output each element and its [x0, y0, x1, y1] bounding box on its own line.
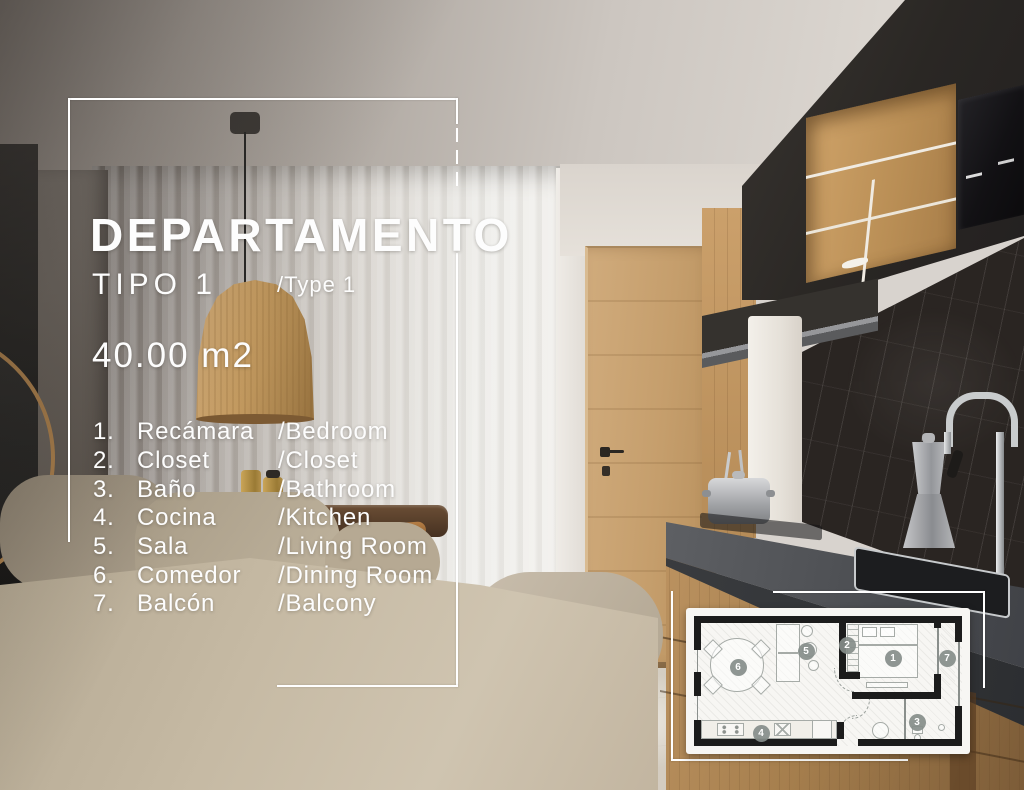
room-number: 3.	[93, 476, 137, 504]
plan-bench	[866, 682, 908, 688]
title-frame-top	[68, 98, 458, 100]
room-name-es: Cocina	[137, 504, 278, 532]
room-name-en: /Living Room	[278, 533, 428, 561]
type-label: TIPO 1	[92, 270, 217, 300]
door-handle-lever	[607, 450, 624, 453]
plan-frame-top	[773, 591, 985, 593]
pot-handle	[766, 490, 775, 497]
plan-marker-bathroom: 3	[909, 714, 926, 731]
plan-bath-sink	[938, 724, 945, 731]
room-name-es: Comedor	[137, 562, 278, 590]
plan-shower	[872, 722, 889, 739]
plan-frame-bottom	[671, 759, 908, 761]
plan-wall-left-seg	[694, 616, 701, 650]
room-number: 5.	[93, 533, 137, 561]
room-name-es: Baño	[137, 476, 278, 504]
pendant-lamp-cord	[244, 132, 246, 284]
bath-divider-line	[904, 699, 906, 739]
type-translation: /Type 1	[277, 274, 356, 296]
plan-wall-left-seg	[694, 672, 701, 696]
room-list-item: 2. Closet /Closet	[93, 447, 483, 476]
title-frame-right-top	[456, 98, 458, 124]
plan-pillow	[862, 627, 877, 637]
plan-balcony-wall-stub	[934, 616, 941, 628]
plan-marker-bedroom: 1	[885, 650, 902, 667]
plan-closet-wall-stub	[839, 672, 860, 679]
apartment-flyer: DEPARTAMENTO TIPO 1 /Type 1 40.00 m2 1. …	[0, 0, 1024, 790]
open-wood-shelf	[806, 83, 956, 283]
door-lock	[602, 466, 610, 476]
plan-stove	[717, 723, 744, 736]
plan-wall-right-seg	[955, 616, 962, 642]
faucet-arc	[946, 392, 1018, 447]
room-name-en: /Balcony	[278, 590, 376, 618]
plan-side-table	[801, 625, 813, 637]
plan-bed-bath-wall	[852, 692, 941, 699]
room-number: 1.	[93, 418, 137, 446]
title-frame-bottom	[277, 685, 458, 687]
glass-cabinet	[958, 85, 1024, 230]
room-name-en: /Bedroom	[278, 418, 388, 446]
floor-plan: 1 2 3 4 5 6 7	[686, 608, 970, 754]
room-list-item: 7. Balcón /Balcony	[93, 590, 483, 619]
plan-plant	[808, 660, 819, 671]
room-name-en: /Kitchen	[278, 504, 371, 532]
area-value: 40.00 m2	[92, 338, 254, 373]
plan-marker-kitchen: 4	[753, 725, 770, 742]
plan-pillow	[880, 627, 895, 637]
faucet-pipe	[996, 432, 1004, 582]
plan-balcony-wall-stub	[934, 674, 941, 699]
plan-entry-wall-stub	[837, 722, 844, 739]
plan-kitchen-sink	[774, 723, 791, 736]
room-list-item: 5. Sala /Living Room	[93, 533, 483, 562]
room-name-en: /Closet	[278, 447, 358, 475]
room-name-es: Recámara	[137, 418, 278, 446]
room-list-item: 6. Comedor /Dining Room	[93, 561, 483, 590]
balcony-glass-line	[937, 628, 939, 674]
room-list-item: 4. Cocina /Kitchen	[93, 504, 483, 533]
title-frame-right-dashes	[456, 128, 458, 192]
room-name-es: Sala	[137, 533, 278, 561]
pendant-lamp-canopy	[230, 112, 260, 134]
plan-marker-living: 5	[798, 643, 815, 660]
room-name-en: /Bathroom	[278, 476, 396, 504]
plan-marker-closet: 2	[839, 637, 856, 654]
room-list-item: 3. Baño /Bathroom	[93, 475, 483, 504]
plan-sofa-cushion-line	[778, 652, 798, 654]
pot-lid-knob	[732, 471, 745, 479]
plan-frame-left	[671, 591, 673, 761]
plan-fridge	[812, 720, 832, 739]
plan-wall-right-seg	[955, 706, 962, 746]
title-frame-left	[68, 98, 70, 542]
plan-wall-top	[694, 616, 962, 623]
plan-marker-balcony: 7	[939, 650, 956, 667]
plan-marker-dining: 6	[730, 659, 747, 676]
room-list: 1. Recámara /Bedroom 2. Closet /Closet 3…	[93, 418, 483, 619]
faucet-spout	[944, 432, 951, 454]
room-number: 6.	[93, 562, 137, 590]
room-list-item: 1. Recámara /Bedroom	[93, 418, 483, 447]
room-name-en: /Dining Room	[278, 562, 433, 590]
plan-wall-bottom-right	[858, 739, 962, 746]
room-number: 7.	[93, 590, 137, 618]
room-number: 2.	[93, 447, 137, 475]
plan-wall-left-seg	[694, 720, 701, 746]
room-number: 4.	[93, 504, 137, 532]
room-name-es: Balcón	[137, 590, 278, 618]
moka-pot-knob	[922, 433, 935, 443]
room-name-es: Closet	[137, 447, 278, 475]
plan-bed-line	[858, 644, 918, 646]
pot-handle	[702, 490, 711, 497]
page-title: DEPARTAMENTO	[90, 212, 513, 258]
plan-frame-right	[983, 591, 985, 688]
